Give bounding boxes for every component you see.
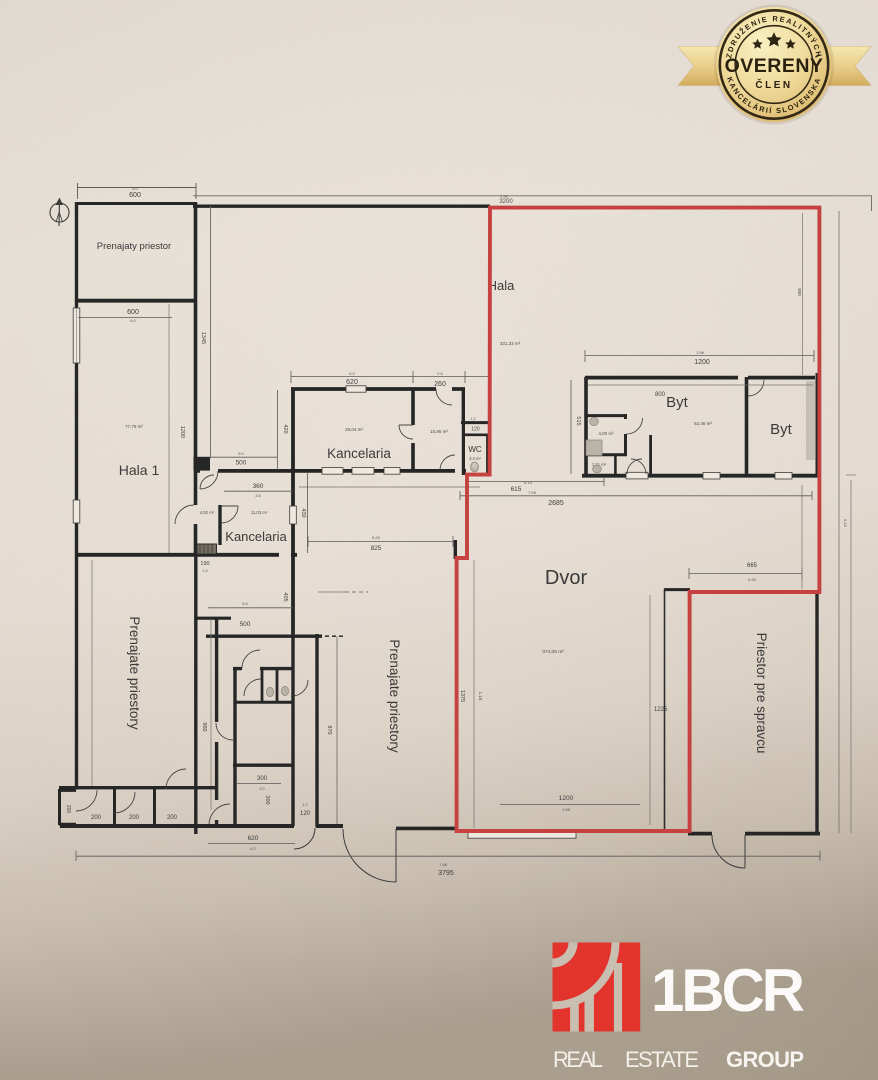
svg-text:2.6: 2.6 — [437, 371, 443, 376]
svg-text:1.9: 1.9 — [202, 569, 207, 573]
svg-text:9.15: 9.15 — [843, 519, 848, 528]
svg-text:374,06 m²: 374,06 m² — [542, 649, 564, 655]
svg-text:620: 620 — [346, 379, 358, 386]
svg-text:26,04 m²: 26,04 m² — [345, 427, 363, 432]
svg-text:6.0: 6.0 — [132, 186, 138, 191]
svg-text:260: 260 — [434, 381, 446, 388]
svg-text:6.15: 6.15 — [524, 480, 533, 485]
svg-text:1200: 1200 — [179, 426, 185, 438]
svg-text:331,33 m²: 331,33 m² — [500, 341, 521, 346]
svg-text:OVERENÝ: OVERENÝ — [725, 53, 824, 77]
svg-text:360: 360 — [253, 483, 264, 490]
svg-text:10,86 m²: 10,86 m² — [430, 429, 448, 434]
svg-text:Prenajate priestory: Prenajate priestory — [387, 639, 402, 753]
svg-text:3,4 m²: 3,4 m² — [469, 456, 481, 461]
svg-text:200: 200 — [65, 805, 71, 814]
svg-text:420: 420 — [282, 424, 288, 433]
svg-text:1.15: 1.15 — [478, 692, 483, 701]
svg-text:1375: 1375 — [459, 690, 465, 702]
svg-text:3200: 3200 — [499, 199, 513, 205]
svg-text:Hala 1: Hala 1 — [119, 462, 160, 478]
svg-text:615: 615 — [511, 486, 522, 493]
svg-text:1BCR: 1BCR — [651, 957, 805, 1024]
svg-text:825: 825 — [371, 545, 382, 552]
svg-text:300: 300 — [257, 776, 268, 782]
svg-text:200: 200 — [167, 815, 178, 821]
svg-text:800: 800 — [797, 288, 802, 296]
svg-text:120: 120 — [300, 811, 311, 817]
svg-text:600: 600 — [127, 309, 139, 316]
svg-text:5.0: 5.0 — [238, 451, 244, 456]
svg-text:Priestor pre spravcu: Priestor pre spravcu — [754, 633, 769, 754]
svg-text:500: 500 — [236, 460, 247, 467]
svg-text:430: 430 — [300, 508, 306, 517]
svg-text:11,03 m²: 11,03 m² — [251, 510, 268, 515]
svg-text:1.98: 1.98 — [696, 350, 705, 355]
svg-text:200: 200 — [91, 815, 102, 821]
svg-text:1345: 1345 — [200, 332, 206, 344]
svg-text:800: 800 — [655, 392, 666, 398]
svg-text:Prenajate priestory: Prenajate priestory — [127, 616, 142, 730]
svg-text:1.98: 1.98 — [562, 807, 571, 812]
svg-text:960: 960 — [201, 722, 207, 731]
svg-text:405: 405 — [282, 592, 288, 601]
svg-text:6.2: 6.2 — [250, 846, 256, 851]
svg-text:3795: 3795 — [438, 870, 454, 877]
svg-text:52,46 m²: 52,46 m² — [694, 421, 712, 426]
svg-text:1200: 1200 — [559, 795, 574, 802]
svg-text:WC: WC — [468, 445, 482, 454]
svg-text:Dvor: Dvor — [545, 567, 588, 589]
svg-text:Byt: Byt — [770, 421, 793, 438]
svg-text:6.2: 6.2 — [349, 371, 355, 376]
svg-text:970: 970 — [326, 725, 332, 734]
svg-text:200: 200 — [129, 815, 140, 821]
svg-text:3.6: 3.6 — [255, 493, 261, 498]
svg-text:2685: 2685 — [548, 500, 564, 507]
svg-text:Byt: Byt — [666, 394, 689, 411]
svg-text:1.2: 1.2 — [302, 803, 307, 807]
svg-text:4,52 m²: 4,52 m² — [200, 510, 215, 515]
svg-text:6.0: 6.0 — [130, 318, 136, 323]
svg-text:7.98: 7.98 — [528, 490, 537, 495]
svg-text:120: 120 — [471, 427, 480, 433]
svg-text:665: 665 — [747, 563, 758, 569]
svg-text:REAL: REAL — [553, 1047, 603, 1072]
svg-text:GROUP: GROUP — [726, 1047, 804, 1072]
svg-text:6.65: 6.65 — [748, 578, 755, 582]
svg-text:1.98: 1.98 — [500, 194, 509, 199]
svg-text:Kancelaria: Kancelaria — [327, 446, 391, 461]
svg-text:500: 500 — [240, 621, 251, 628]
svg-text:7.98: 7.98 — [439, 862, 448, 867]
svg-text:1225: 1225 — [654, 707, 668, 713]
svg-text:77,75 m²: 77,75 m² — [125, 424, 143, 429]
svg-text:1.2: 1.2 — [470, 417, 475, 421]
svg-text:515: 515 — [575, 416, 581, 425]
svg-text:620: 620 — [248, 835, 259, 842]
svg-text:Prenajaty priestor: Prenajaty priestor — [97, 241, 171, 252]
svg-text:4,00 m²: 4,00 m² — [598, 431, 614, 436]
svg-text:ČLEN: ČLEN — [755, 78, 792, 91]
svg-text:Kancelaria: Kancelaria — [225, 529, 287, 544]
svg-text:300: 300 — [264, 795, 270, 804]
svg-text:600: 600 — [129, 192, 141, 199]
svg-text:190: 190 — [200, 561, 209, 567]
svg-text:1200: 1200 — [694, 359, 710, 366]
svg-text:5.0: 5.0 — [242, 601, 248, 606]
svg-text:3.0: 3.0 — [259, 787, 264, 791]
svg-text:ESTATE: ESTATE — [625, 1047, 699, 1072]
svg-text:8.25: 8.25 — [372, 535, 381, 540]
